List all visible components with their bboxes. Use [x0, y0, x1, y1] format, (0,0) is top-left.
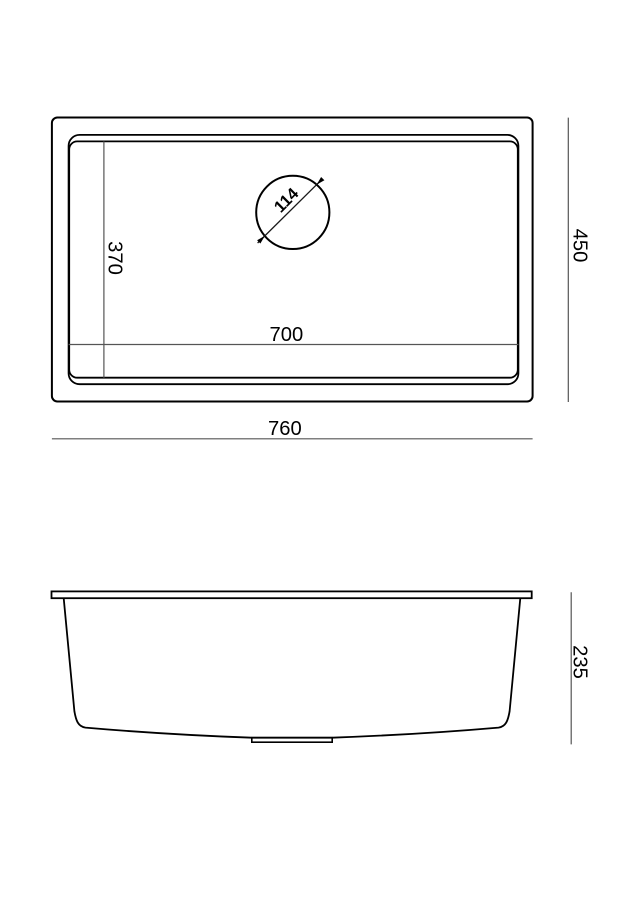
svg-text:700: 700: [270, 324, 304, 346]
svg-text:370: 370: [104, 241, 126, 275]
svg-text:760: 760: [268, 418, 302, 440]
svg-text:235: 235: [569, 645, 591, 679]
svg-text:450: 450: [569, 229, 591, 263]
